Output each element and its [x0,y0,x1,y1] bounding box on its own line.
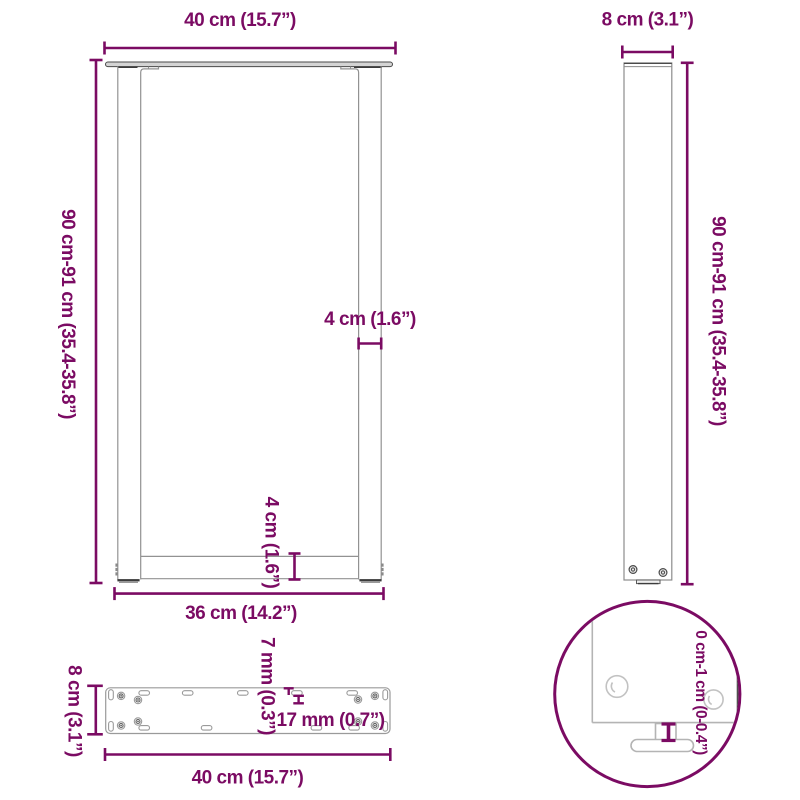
svg-text:40 cm (15.7”): 40 cm (15.7”) [192,767,304,788]
svg-text:4 cm (1.6”): 4 cm (1.6”) [324,309,416,330]
svg-text:40 cm (15.7”): 40 cm (15.7”) [184,10,296,31]
svg-text:7 mm (0.3”): 7 mm (0.3”) [257,637,278,735]
svg-text:8 cm (3.1”): 8 cm (3.1”) [602,9,694,30]
svg-text:90 cm-91 cm (35.4-35.8”): 90 cm-91 cm (35.4-35.8”) [57,209,78,419]
svg-text:90 cm-91 cm (35.4-35.8”): 90 cm-91 cm (35.4-35.8”) [708,216,729,426]
svg-text:0 cm-1 cm (0-0.4”): 0 cm-1 cm (0-0.4”) [692,630,709,755]
svg-text:17 mm (0.7”): 17 mm (0.7”) [276,710,384,731]
svg-text:4 cm (1.6”): 4 cm (1.6”) [261,497,282,589]
svg-text:8 cm (3.1”): 8 cm (3.1”) [64,665,85,757]
svg-text:36 cm (14.2”): 36 cm (14.2”) [185,603,297,624]
